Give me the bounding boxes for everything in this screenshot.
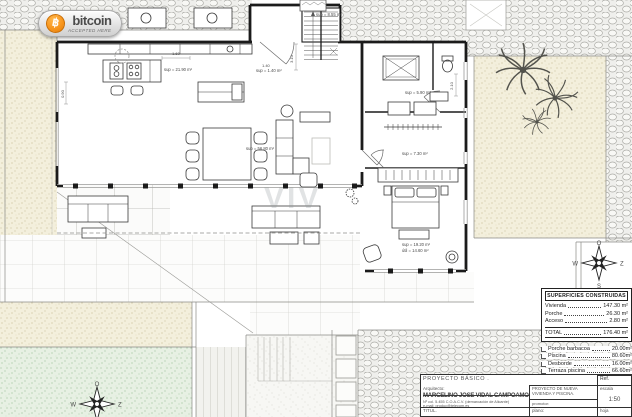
architect-label: Arquitecto: — [423, 386, 527, 391]
compass-label-left: W — [70, 403, 76, 409]
main-terrace-paving — [0, 235, 360, 302]
outdoor-areas-list: Porche barbacoa 20.00m² Piscina 80.60m² … — [541, 346, 632, 375]
dim-label: 1.60 — [172, 51, 181, 56]
bar-stool — [131, 86, 143, 95]
terrace-paving-extension — [250, 302, 360, 335]
stock-watermark: VIV — [264, 182, 321, 216]
sideboard — [198, 82, 244, 102]
entry-area-label: sup = 8.55 m² — [316, 12, 342, 17]
scale-label: escala — [600, 386, 629, 391]
bedroom-wardrobe — [378, 168, 458, 182]
leader-dots — [592, 350, 610, 351]
bedroom-area-label: sup = 19.20 m² — [402, 242, 431, 247]
bitcoin-accepted-badge[interactable]: ฿ bitcoin ACCEPTED HERE — [38, 10, 122, 37]
planter — [352, 198, 358, 204]
kitchen-area-label: sup = 21.90 m² — [164, 67, 193, 72]
compass-rose-icon — [582, 246, 616, 280]
sheet-label: hoja — [597, 407, 631, 416]
cobble-right-strip — [606, 56, 632, 242]
project-type: PROYECTO BÁSICO . — [421, 375, 597, 385]
east-terrace-paving — [360, 272, 474, 302]
bitcoin-badge-text: bitcoin ACCEPTED HERE — [68, 15, 111, 33]
sand-left — [0, 30, 57, 235]
total-value: 176.40 m² — [603, 330, 628, 336]
built-areas-table: SUPERFICIES CONSTRUIDAS Vivienda 147.30 … — [541, 288, 632, 342]
skylight — [300, 0, 326, 11]
living-area-label: sup = 56.80 m² — [246, 146, 275, 151]
bitcoin-symbol: ฿ — [51, 16, 60, 29]
area-label: Porche — [545, 311, 562, 317]
planter — [346, 189, 354, 197]
compass-label-right: Z — [620, 262, 624, 268]
leader-dots — [564, 315, 604, 316]
area-value: 2.80 m² — [609, 318, 628, 324]
compass-label-top: O — [597, 241, 602, 247]
outdoor-area-row: Desborde 16.00m² — [541, 361, 632, 367]
project-title: PROYECTO DE NUEVA VIVIENDA Y PISCINA. — [532, 386, 595, 399]
architect-name: MARCELINO JOSE VIDAL CAMPOAMOR — [423, 393, 527, 399]
row-hook-mark — [541, 347, 546, 352]
compass-rose-east: O Z W S — [572, 241, 624, 290]
title-block: PROYECTO BÁSICO . Ref. Arquitecto: MARCE… — [420, 374, 632, 417]
leader-dots — [574, 365, 610, 366]
compass-label-right: Z — [118, 403, 122, 409]
area-value: 20.00m² — [612, 346, 632, 352]
architect-cell: Arquitecto: MARCELINO JOSE VIDAL CAMPOAM… — [421, 385, 529, 407]
kitchen-counter — [88, 44, 252, 54]
project-cell: PROYECTO DE NUEVA VIVIENDA Y PISCINA. pr… — [529, 385, 597, 407]
dim-label: 0.90 — [60, 89, 65, 98]
dining-table — [186, 128, 267, 180]
bitcoin-brand-label: bitcoin — [72, 15, 111, 27]
dim-label: 2.10 — [449, 81, 454, 90]
leader-dots — [568, 307, 601, 308]
area-total-row: TOTAL 176.40 m² — [545, 327, 628, 338]
dim-label: 3.10 — [289, 54, 294, 63]
areas-table-title: SUPERFICIES CONSTRUIDAS — [545, 291, 628, 301]
washbasin — [430, 92, 448, 101]
promoter-cell: promotor: SAMER MANAGEMENT S.L. — [530, 399, 597, 407]
architectural-plan-sheet: 3.10 1.60 2.10 0.90 1.40 sup = 21.90 m² … — [0, 0, 632, 417]
deck-boards — [196, 347, 246, 417]
plan-label: plano: — [529, 407, 597, 416]
row-hook-mark — [541, 354, 546, 359]
beach-sand-band — [0, 302, 192, 347]
area-value: 16.00m² — [612, 361, 632, 367]
compass-label-top: O — [95, 382, 100, 388]
nightstand — [384, 186, 391, 195]
leader-dots — [587, 372, 610, 373]
area-row: Acceso 2.80 m² — [545, 318, 628, 324]
bedroom-useful-label: útil = 14.60 m² — [402, 248, 429, 253]
leader-dots — [564, 334, 601, 335]
scale-cell: escala 1:50 — [597, 385, 631, 407]
leader-dots — [568, 357, 610, 358]
area-row: Vivienda 147.30 m² — [545, 303, 628, 309]
total-label: TOTAL — [545, 330, 562, 336]
sand-right-garden — [474, 56, 606, 238]
area-value: 147.30 m² — [603, 303, 628, 309]
area-label: Piscina — [548, 353, 566, 359]
area-row: Porche 26.30 m² — [545, 311, 628, 317]
area-label: Desborde — [548, 361, 572, 367]
tv-console — [300, 112, 330, 122]
area-value: 80.60m² — [612, 353, 632, 359]
scale-value: 1:50 — [600, 397, 629, 403]
bitcoin-tagline: ACCEPTED HERE — [68, 28, 111, 33]
leader-dots — [565, 322, 607, 323]
ref-label: Ref. — [597, 375, 631, 385]
area-label: Porche barbacoa — [548, 346, 590, 352]
area-value: 26.30 m² — [606, 311, 628, 317]
titular-label: TITUL. — [421, 407, 529, 416]
bar-stool — [111, 86, 123, 95]
row-hook-mark — [541, 362, 546, 367]
outdoor-area-row: Piscina 80.60m² — [541, 353, 632, 359]
area-label: Acceso — [545, 318, 563, 324]
nightstand — [441, 186, 448, 195]
bathroom-shower — [383, 56, 419, 80]
access-area-label: sup = 1.40 m² — [256, 68, 282, 73]
areas-summary-panel: SUPERFICIES CONSTRUIDAS Vivienda 147.30 … — [541, 288, 632, 376]
bed-bench — [399, 230, 429, 239]
bathroom-area-label: sup = 5.90 m² — [405, 90, 431, 95]
promoter-label: promotor: — [532, 401, 595, 406]
dressing-area-label: sup = 7.30 m² — [402, 151, 428, 156]
stepping-stones — [336, 336, 356, 417]
area-label: Vivienda — [545, 303, 566, 309]
bitcoin-coin-icon: ฿ — [44, 12, 67, 35]
compass-label-left: W — [572, 262, 578, 268]
outdoor-area-row: Porche barbacoa 20.00m² — [541, 346, 632, 352]
